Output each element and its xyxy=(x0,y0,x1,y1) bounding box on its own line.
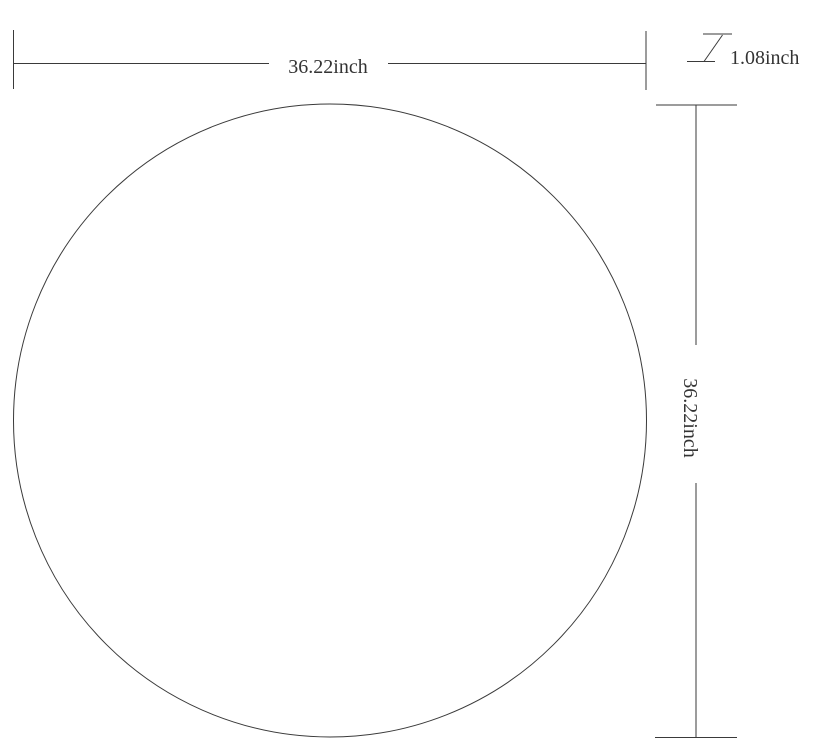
thickness-symbol-diagonal-line xyxy=(704,35,723,62)
width-dim-label: 36.22inch xyxy=(288,56,367,78)
circle-outline xyxy=(14,104,647,737)
dimension-diagram: 36.22inch 36.22inch 1.08inch xyxy=(0,0,820,754)
dimension-diagram-page: 36.22inch 36.22inch 1.08inch xyxy=(0,0,820,754)
thickness-dimension: 1.08inch xyxy=(687,34,799,69)
thickness-dim-label: 1.08inch xyxy=(730,47,799,69)
width-dimension: 36.22inch xyxy=(14,30,647,90)
height-dimension: 36.22inch xyxy=(655,105,737,738)
height-dim-label: 36.22inch xyxy=(679,378,701,457)
